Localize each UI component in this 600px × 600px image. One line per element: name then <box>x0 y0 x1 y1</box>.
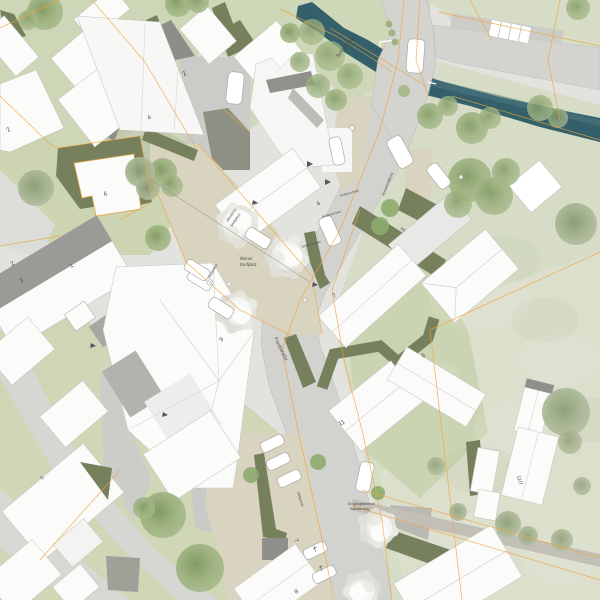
svg-text:Dorfplatz: Dorfplatz <box>240 262 257 267</box>
svg-text:Eingangsbereich: Eingangsbereich <box>348 502 375 506</box>
svg-text:Wanderweg: Wanderweg <box>350 507 369 511</box>
svg-text:kleiner: kleiner <box>240 256 253 261</box>
